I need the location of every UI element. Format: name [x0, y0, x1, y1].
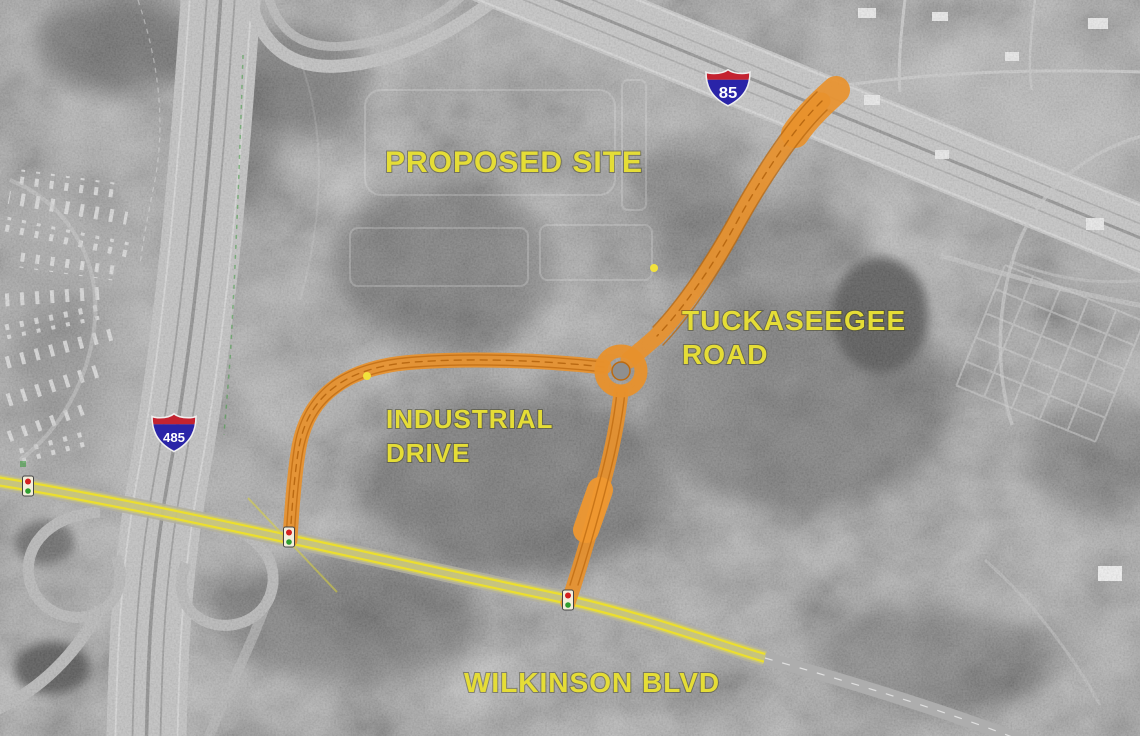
- i485-shield-number: 485: [163, 430, 185, 445]
- traffic-signal-icon: [23, 476, 34, 496]
- industrial-drive-label-line1: INDUSTRIAL: [386, 404, 553, 434]
- traffic-signal-icon: [284, 527, 295, 547]
- roundabout: [601, 351, 641, 391]
- green-boundary-tick: [20, 461, 26, 467]
- wilkinson-blvd-label: WILKINSON BLVD: [464, 667, 720, 698]
- tuckaseegee-road-label-line2: ROAD: [682, 339, 768, 370]
- tuckaseegee-road-label-line1: TUCKASEEGEE: [682, 305, 906, 336]
- proposed-site-label: PROPOSED SITE: [385, 146, 643, 179]
- industrial-drive-label-line2: DRIVE: [386, 438, 470, 468]
- aerial-map-stage: 85 485 PROPOSED SITE TUCKASEEGEE ROAD IN…: [0, 0, 1140, 736]
- intersection-dot: [363, 372, 371, 380]
- intersection-dot: [650, 264, 658, 272]
- aerial-map: 85 485 PROPOSED SITE TUCKASEEGEE ROAD IN…: [0, 0, 1140, 736]
- traffic-signal-icon: [563, 590, 574, 610]
- i85-shield-number: 85: [719, 85, 738, 103]
